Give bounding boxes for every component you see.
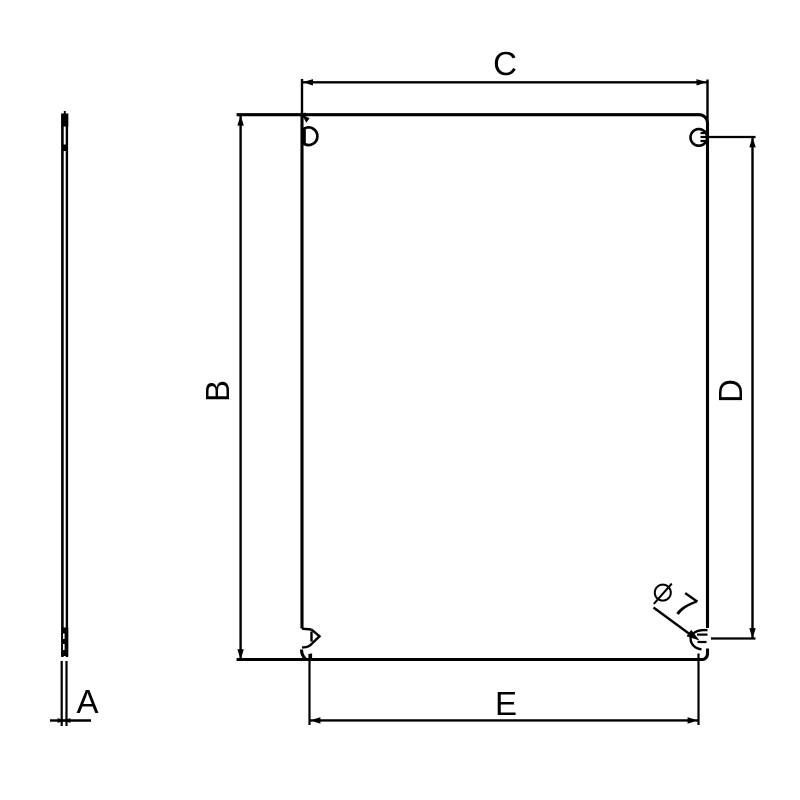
svg-text:D: D	[712, 379, 749, 403]
svg-text:C: C	[493, 45, 517, 82]
svg-text:7: 7	[667, 585, 703, 626]
svg-text:B: B	[199, 380, 236, 402]
svg-text:A: A	[76, 683, 98, 720]
svg-text:E: E	[495, 685, 517, 722]
